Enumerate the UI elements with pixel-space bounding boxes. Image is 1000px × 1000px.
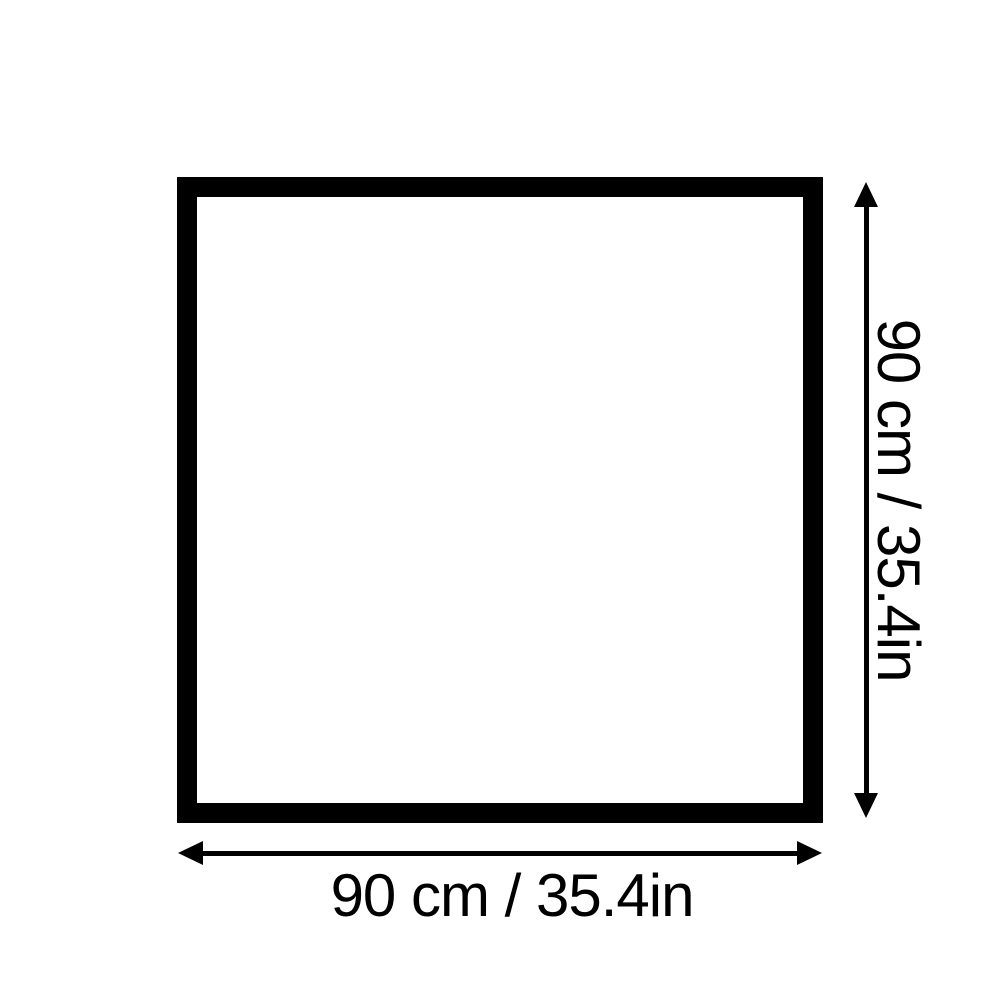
width-dimension-line xyxy=(190,851,810,856)
dimension-diagram: 90 cm / 35.4in 90 cm / 35.4in xyxy=(0,0,1000,1000)
arrowhead-right-icon xyxy=(797,841,822,865)
arrowhead-left-icon xyxy=(178,841,203,865)
height-dimension-label: 90 cm / 35.4in xyxy=(868,250,928,750)
product-outline-square xyxy=(177,177,823,823)
width-dimension-label: 90 cm / 35.4in xyxy=(262,866,762,926)
arrowhead-up-icon xyxy=(854,182,878,207)
arrowhead-down-icon xyxy=(854,793,878,818)
